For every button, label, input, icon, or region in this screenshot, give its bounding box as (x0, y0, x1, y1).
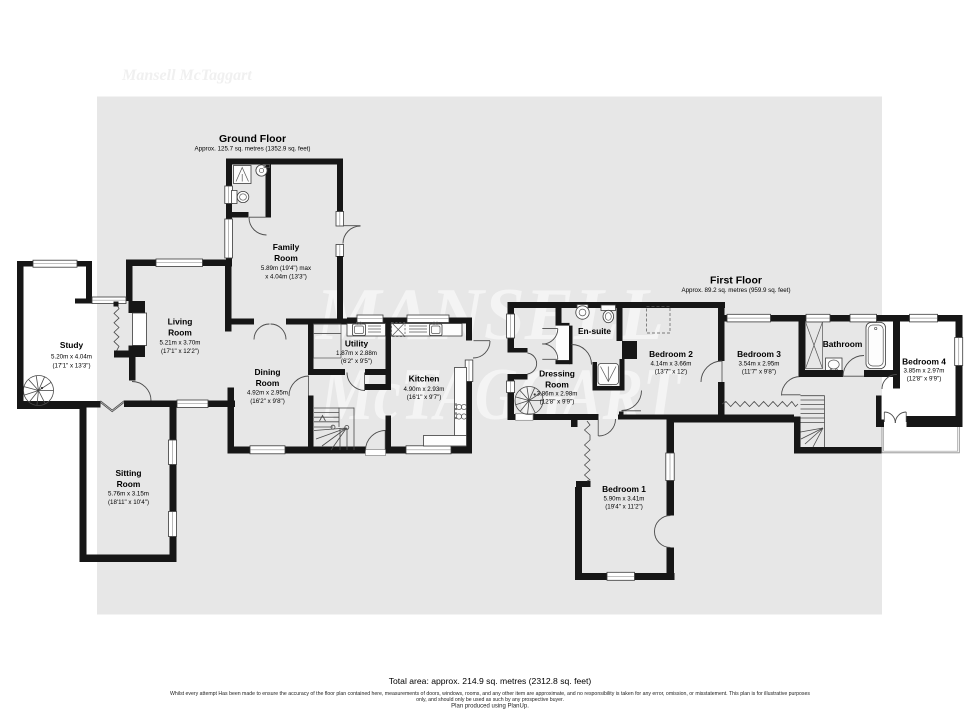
svg-text:1.87m x 2.88m: 1.87m x 2.88m (336, 350, 377, 357)
svg-text:(18'11" x 10'4"): (18'11" x 10'4") (108, 499, 149, 506)
svg-text:5.76m x 3.15m: 5.76m x 3.15m (108, 491, 149, 498)
svg-text:Room: Room (117, 479, 141, 489)
svg-text:McTAGGART: McTAGGART (319, 354, 682, 436)
svg-text:5.20m x 4.04m: 5.20m x 4.04m (51, 354, 92, 361)
svg-text:Bathroom: Bathroom (823, 339, 863, 349)
svg-text:(12'8" x 9'9"): (12'8" x 9'9") (540, 399, 575, 406)
svg-text:Sitting: Sitting (115, 468, 141, 478)
svg-text:4.90m x 2.93m: 4.90m x 2.93m (404, 386, 445, 393)
svg-text:Kitchen: Kitchen (409, 374, 440, 384)
svg-text:Approx. 89.2 sq. metres (959.9: Approx. 89.2 sq. metres (959.9 sq. feet) (681, 287, 790, 294)
svg-text:Room: Room (545, 380, 569, 390)
svg-text:Ground Floor: Ground Floor (219, 133, 286, 145)
svg-text:(11'7" x 9'8"): (11'7" x 9'8") (742, 369, 776, 376)
svg-text:(12'8" x 9'9"): (12'8" x 9'9") (907, 376, 942, 383)
svg-text:Room: Room (168, 328, 192, 338)
svg-text:5.89m (19'4") max: 5.89m (19'4") max (261, 265, 312, 272)
svg-text:(13'7" x 12'): (13'7" x 12') (655, 369, 687, 376)
svg-text:5.21m x 3.70m: 5.21m x 3.70m (160, 340, 201, 347)
svg-text:Bedroom 4: Bedroom 4 (902, 357, 946, 367)
svg-text:Family: Family (273, 242, 300, 252)
svg-text:Approx. 125.7 sq. metres (1352: Approx. 125.7 sq. metres (1352.9 sq. fee… (195, 146, 311, 153)
svg-text:x 4.04m (13'3"): x 4.04m (13'3") (265, 274, 307, 281)
svg-text:4.14m x 3.66m: 4.14m x 3.66m (651, 361, 692, 368)
svg-text:Total area: approx. 214.9 sq.: Total area: approx. 214.9 sq. metres (23… (389, 676, 592, 686)
svg-text:Mansell McTaggart: Mansell McTaggart (121, 67, 252, 84)
svg-text:3.86m x 2.98m: 3.86m x 2.98m (537, 391, 578, 398)
svg-text:Room: Room (256, 378, 280, 388)
svg-text:Dining: Dining (254, 367, 280, 377)
svg-text:Dressing: Dressing (539, 369, 575, 379)
svg-text:(17'1" x 13'3"): (17'1" x 13'3") (52, 363, 90, 370)
svg-text:3.54m x 2.95m: 3.54m x 2.95m (739, 361, 780, 368)
svg-text:First Floor: First Floor (710, 275, 762, 287)
svg-text:(6'2" x 9'5"): (6'2" x 9'5") (341, 358, 372, 365)
svg-text:Living: Living (168, 317, 193, 327)
svg-text:Study: Study (60, 340, 84, 350)
svg-text:only, and should only be used: only, and should only be used as such by… (416, 697, 564, 703)
svg-text:(16'1" x 9'7"): (16'1" x 9'7") (407, 394, 442, 401)
svg-text:En-suite: En-suite (578, 326, 611, 336)
svg-text:Utility: Utility (345, 339, 369, 349)
svg-text:(16'2" x 9'8"): (16'2" x 9'8") (250, 398, 285, 405)
svg-text:(17'1" x 12'2"): (17'1" x 12'2") (161, 348, 199, 355)
svg-text:Plan produced using PlanUp.: Plan produced using PlanUp. (451, 704, 529, 710)
svg-text:5.90m x 3.41m: 5.90m x 3.41m (604, 496, 645, 503)
svg-text:Bedroom 3: Bedroom 3 (737, 349, 781, 359)
svg-text:4.92m x 2.95m: 4.92m x 2.95m (247, 390, 288, 397)
svg-text:3.85m x 2.97m: 3.85m x 2.97m (904, 368, 945, 375)
svg-text:Bedroom 1: Bedroom 1 (602, 484, 646, 494)
svg-text:Room: Room (274, 253, 298, 263)
svg-text:(19'4" x 11'2"): (19'4" x 11'2") (605, 504, 643, 511)
svg-text:Bedroom 2: Bedroom 2 (649, 349, 693, 359)
